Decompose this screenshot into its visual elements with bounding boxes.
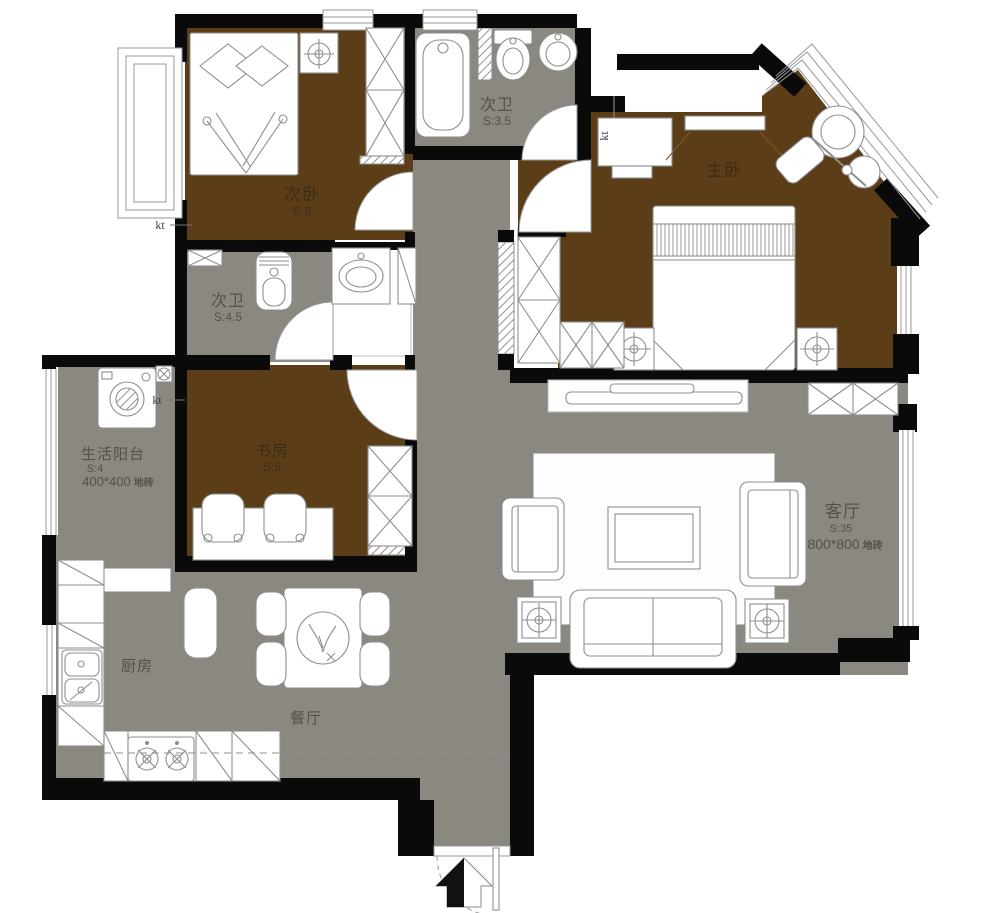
- entrance-arrow: [436, 858, 492, 907]
- floor-plan-canvas: 次卧 S:8 次卫 S:3.5 主卧 次卫 S:4.5 生活阳台 S:4 400…: [0, 0, 1000, 913]
- room-label-study: 书房: [255, 442, 289, 460]
- room-label-kitchen: 厨房: [121, 658, 153, 675]
- wall: [617, 54, 759, 70]
- entrance: [434, 846, 510, 913]
- dining-table: [284, 588, 362, 688]
- window-top-1: [323, 10, 373, 30]
- coffee-table: [608, 507, 700, 569]
- sink-round: [539, 33, 577, 71]
- nightstand-secondary: [300, 33, 338, 73]
- wall: [405, 28, 415, 154]
- bed-secondary: [190, 33, 298, 175]
- entrance-door-leaf: [493, 848, 499, 910]
- wall: [893, 626, 919, 640]
- dining-chair: [256, 592, 286, 636]
- room-label-secondary-bedroom: 次卧: [284, 185, 320, 204]
- wall: [398, 800, 434, 856]
- room-label-bath-top: 次卫: [480, 96, 514, 114]
- wall: [175, 355, 270, 370]
- side-table-lamp-left: [517, 597, 561, 643]
- room-label-master-bedroom: 主卧: [706, 161, 742, 180]
- side-table-lamp-right: [745, 599, 789, 643]
- toilet-mid: [256, 252, 292, 310]
- window-balcony-west: [42, 369, 58, 535]
- wall: [591, 96, 625, 112]
- toilet-top: [494, 30, 532, 80]
- hatch-wall-corridor-master: [498, 242, 514, 354]
- wall: [42, 535, 56, 625]
- window-top-2: [423, 10, 477, 30]
- room-label-dining: 餐厅: [290, 710, 322, 727]
- desk-chair: [202, 494, 244, 542]
- window-living-east: [899, 430, 915, 626]
- bathtub: [416, 33, 470, 137]
- cabinet-tall-bath-mid: [398, 248, 416, 304]
- kitchen-cabinet-top: [103, 568, 171, 592]
- hatch-bath-divider: [478, 28, 492, 80]
- room-area-bath-mid: S:4.5: [214, 310, 242, 324]
- sink-vanity-mid: [332, 248, 390, 304]
- kitchen-door-leaf: [184, 588, 217, 658]
- wall: [42, 355, 56, 369]
- wardrobe-secondary: [366, 28, 404, 156]
- wall: [891, 218, 919, 266]
- ac-label-top-left: kt: [155, 218, 165, 232]
- cabinet-small-bath-mid: [188, 250, 222, 266]
- floor-plan-page: 次卧 S:8 次卫 S:3.5 主卧 次卫 S:4.5 生活阳台 S:4 400…: [0, 0, 1000, 913]
- nightstand-master-right: [797, 328, 837, 370]
- dining-chair: [256, 642, 286, 686]
- bed-headboard: [653, 224, 795, 256]
- washing-machine: [98, 368, 156, 428]
- room-area-secondary-bedroom: S:8: [293, 204, 311, 218]
- armchair-right: [740, 482, 806, 586]
- wardrobe-master-row: [560, 322, 624, 368]
- bed-master: [653, 206, 795, 370]
- hatch-wardrobe-strip: [360, 156, 404, 164]
- window-kitchen-west: [44, 625, 56, 695]
- floor-drain: [156, 366, 172, 382]
- wall: [477, 14, 577, 28]
- wall: [42, 695, 56, 783]
- room-area-study: S:8: [263, 460, 281, 474]
- wall: [498, 354, 514, 370]
- window-master-east: [897, 266, 913, 334]
- bay-window-west: [118, 48, 182, 218]
- room-area-living: S:35: [830, 523, 853, 535]
- stove: [128, 737, 194, 781]
- kitchen-sink: [62, 650, 102, 704]
- wall: [48, 355, 185, 367]
- armchair-left: [502, 498, 564, 580]
- room-label-bath-mid: 次卫: [211, 292, 245, 310]
- wall: [175, 14, 323, 28]
- room-label-living: 客厅: [825, 502, 861, 521]
- cabinet-living-top: [808, 383, 898, 415]
- sofa: [570, 590, 736, 668]
- ac-label-balcony: kt: [152, 393, 162, 407]
- dining-chair: [360, 592, 390, 636]
- wall: [510, 655, 534, 856]
- wall: [838, 638, 910, 662]
- wall: [413, 146, 525, 160]
- wardrobe-study: [368, 446, 412, 546]
- floor-corridor: [413, 146, 510, 848]
- room-label-balcony: 生活阳台: [81, 446, 145, 463]
- tv-stand: [566, 392, 742, 404]
- wall: [405, 355, 415, 370]
- room-area-bath-top: S:3.5: [483, 114, 511, 128]
- ac-label-master: kt: [597, 131, 611, 141]
- tv: [610, 384, 694, 393]
- wall: [498, 230, 514, 242]
- wardrobe-master-column: [518, 237, 560, 363]
- wall: [373, 14, 423, 28]
- wall: [175, 200, 187, 570]
- desk-chair: [264, 494, 306, 542]
- dining-chair: [360, 642, 390, 686]
